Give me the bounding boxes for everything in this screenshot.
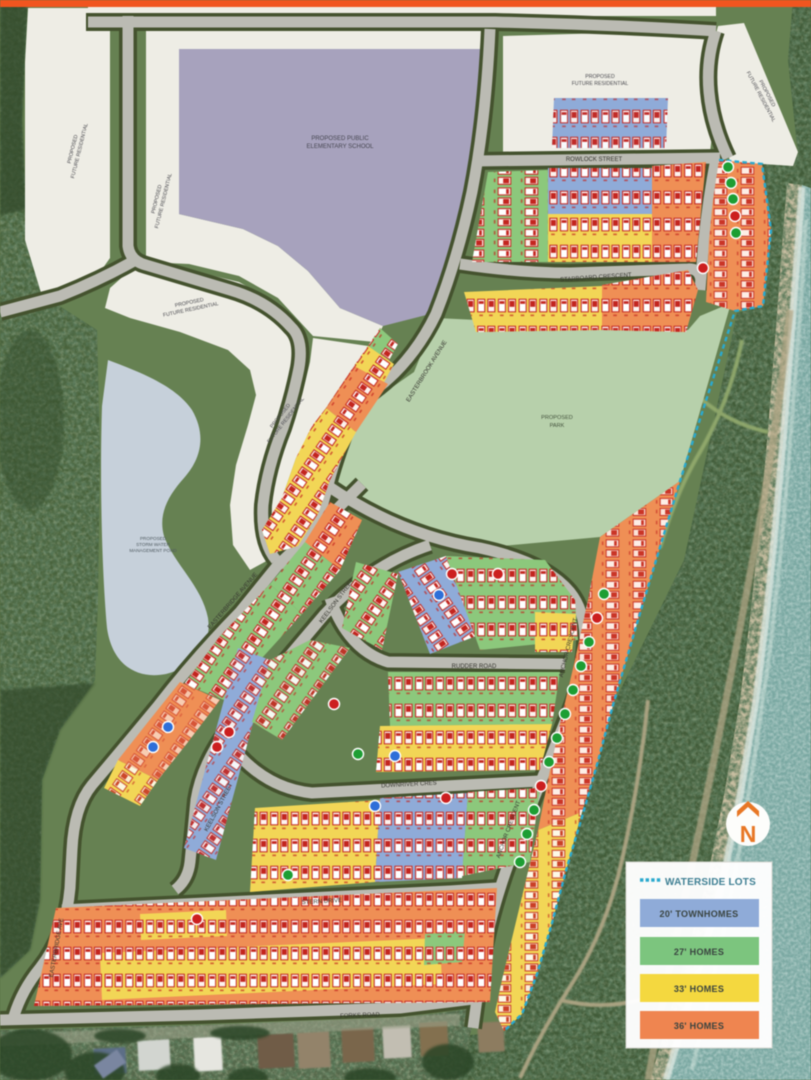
svg-text:PROPOSED: PROPOSED bbox=[541, 415, 573, 421]
svg-text:20' TOWNHOMES: 20' TOWNHOMES bbox=[660, 909, 739, 919]
svg-text:ROWLOCK STREET: ROWLOCK STREET bbox=[566, 157, 623, 163]
svg-text:FUTURE RESIDENTIAL: FUTURE RESIDENTIAL bbox=[572, 81, 629, 87]
svg-text:WATERSIDE LOTS: WATERSIDE LOTS bbox=[665, 877, 756, 888]
svg-text:PROPOSED: PROPOSED bbox=[585, 74, 615, 80]
svg-text:ELEMENTARY SCHOOL: ELEMENTARY SCHOOL bbox=[306, 144, 374, 150]
svg-text:33' HOMES: 33' HOMES bbox=[674, 984, 724, 994]
svg-text:PARK: PARK bbox=[550, 423, 565, 429]
svg-text:STORM WATER: STORM WATER bbox=[136, 542, 171, 547]
svg-text:RUDDER ROAD: RUDDER ROAD bbox=[452, 664, 497, 670]
svg-text:36' HOMES: 36' HOMES bbox=[674, 1021, 724, 1031]
svg-text:MANAGEMENT POND: MANAGEMENT POND bbox=[129, 548, 177, 553]
svg-text:N: N bbox=[740, 821, 757, 847]
svg-text:PROPOSED: PROPOSED bbox=[140, 536, 167, 541]
svg-text:PROPOSED PUBLIC: PROPOSED PUBLIC bbox=[311, 136, 369, 142]
svg-text:27' HOMES: 27' HOMES bbox=[674, 947, 724, 957]
